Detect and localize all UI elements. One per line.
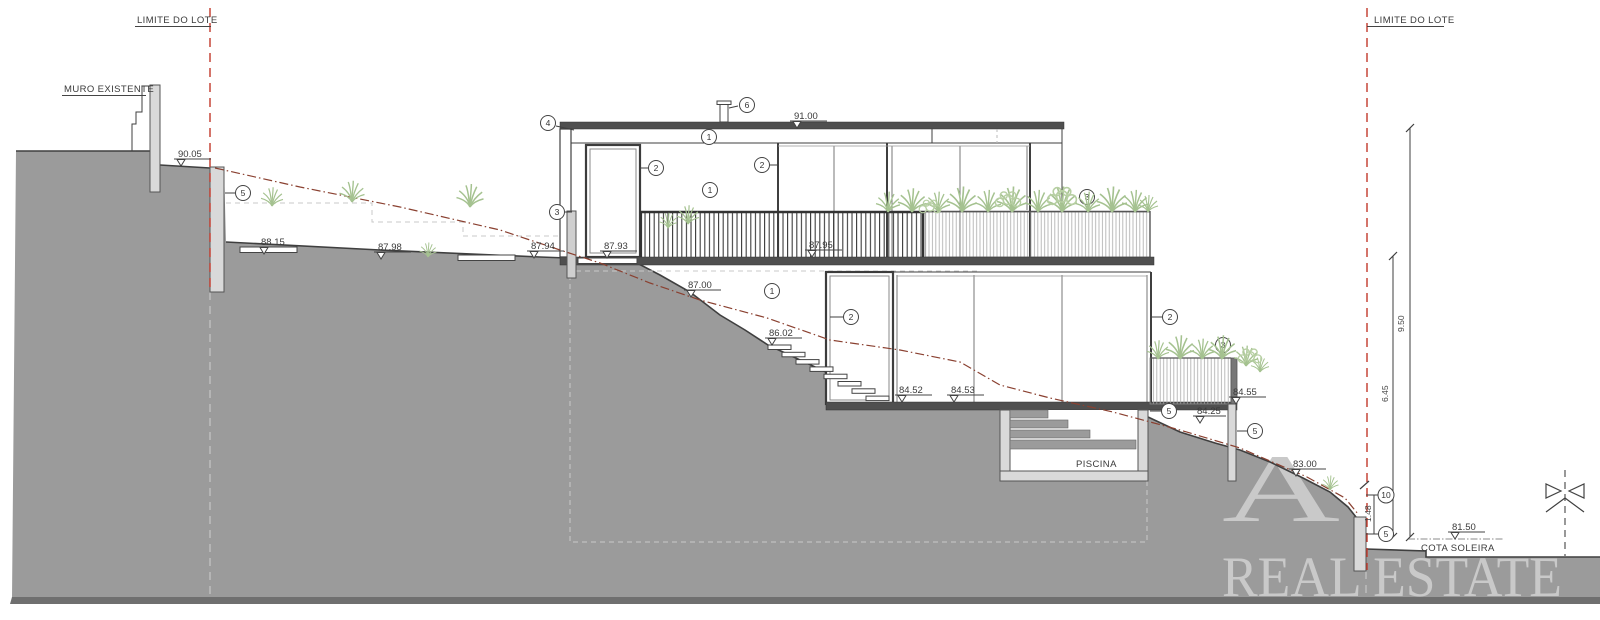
callout-1-wall-upper: 1 bbox=[703, 183, 718, 198]
existing-wall-label: MURO EXISTENTE bbox=[64, 84, 154, 95]
callout-4: 4 bbox=[541, 116, 556, 131]
svg-text:87.98: 87.98 bbox=[378, 242, 402, 253]
svg-text:6: 6 bbox=[745, 100, 750, 110]
svg-text:1: 1 bbox=[770, 286, 775, 296]
limit-right-label: LIMITE DO LOTE bbox=[1374, 15, 1455, 26]
architectural-section: A REAL ESTATE bbox=[0, 0, 1600, 620]
callout-5-wall-lower: 5 bbox=[1379, 527, 1394, 542]
dimension-9-50: 9.50 bbox=[1396, 315, 1406, 332]
svg-text:84.53: 84.53 bbox=[951, 385, 975, 396]
section-drawing-canvas: A REAL ESTATE bbox=[0, 0, 1600, 620]
roof-slab bbox=[560, 122, 1064, 129]
svg-text:87.93: 87.93 bbox=[604, 241, 628, 252]
svg-text:81.50: 81.50 bbox=[1452, 522, 1476, 533]
elevation-86-02: 86.02 bbox=[765, 328, 802, 345]
svg-text:2: 2 bbox=[654, 163, 659, 173]
svg-text:5: 5 bbox=[1384, 529, 1389, 539]
callout-5-limit-wall: 5 bbox=[236, 186, 251, 201]
svg-text:87.00: 87.00 bbox=[688, 280, 712, 291]
callout-2-window-upper: 2 bbox=[755, 158, 770, 173]
elevation-90-05: 90.05 bbox=[174, 149, 211, 166]
svg-text:84.52: 84.52 bbox=[899, 385, 923, 396]
pool: PISCINA bbox=[1000, 410, 1148, 481]
callout-10: 10 bbox=[1378, 487, 1394, 503]
svg-text:87.94: 87.94 bbox=[531, 241, 555, 252]
svg-text:2: 2 bbox=[1168, 312, 1173, 322]
callout-5-slab: 5 bbox=[1162, 404, 1177, 419]
svg-text:91.00: 91.00 bbox=[794, 111, 818, 122]
dimension-6-45: 6.45 bbox=[1380, 385, 1390, 402]
svg-text:84.55: 84.55 bbox=[1233, 387, 1257, 398]
svg-text:1: 1 bbox=[707, 132, 712, 142]
svg-text:84.25: 84.25 bbox=[1197, 406, 1221, 417]
callout-2-door-lower: 2 bbox=[844, 310, 859, 325]
watermark: A REAL ESTATE bbox=[1222, 435, 1562, 609]
elevation-87-00: 87.00 bbox=[684, 280, 721, 297]
lower-planter bbox=[1150, 358, 1237, 404]
callout-6: 6 bbox=[740, 98, 755, 113]
elevation-84-52: 84.52 bbox=[895, 385, 932, 402]
chimney bbox=[717, 101, 731, 122]
elevation-84-55: 84.55 bbox=[1229, 387, 1266, 404]
survey-marker-icon bbox=[1546, 470, 1584, 556]
limit-left-label: LIMITE DO LOTE bbox=[137, 15, 218, 26]
retaining-wall-right bbox=[1354, 517, 1366, 571]
svg-text:5: 5 bbox=[241, 188, 246, 198]
callout-5-wall-mid: 5 bbox=[1248, 424, 1263, 439]
terrace-slab bbox=[560, 257, 1154, 265]
callout-3-wall: 3 bbox=[550, 205, 565, 220]
svg-text:90.05: 90.05 bbox=[178, 149, 202, 160]
callout-1-roof: 1 bbox=[702, 130, 717, 145]
watermark-line2: REAL ESTATE bbox=[1222, 546, 1562, 609]
svg-text:5: 5 bbox=[1253, 426, 1258, 436]
svg-text:87.95: 87.95 bbox=[809, 240, 833, 251]
pool-label: PISCINA bbox=[1076, 459, 1117, 470]
callout-2-door-upper: 2 bbox=[649, 161, 664, 176]
callout-1-lower: 1 bbox=[765, 284, 780, 299]
callout-2-window-lower: 2 bbox=[1163, 310, 1178, 325]
svg-text:2: 2 bbox=[849, 312, 854, 322]
retaining-wall-mid bbox=[1228, 404, 1236, 481]
svg-text:88.15: 88.15 bbox=[261, 237, 285, 248]
lower-windows bbox=[893, 272, 1151, 402]
svg-text:3: 3 bbox=[555, 207, 560, 217]
svg-text:5: 5 bbox=[1167, 406, 1172, 416]
dimension-1-48: 1.48 bbox=[1363, 505, 1373, 522]
svg-text:10: 10 bbox=[1381, 490, 1391, 500]
svg-text:86.02: 86.02 bbox=[769, 328, 793, 339]
lot-limit-wall-left bbox=[210, 167, 224, 292]
dimension-lines: 9.50 6.45 1.48 bbox=[1360, 124, 1414, 541]
upper-floor bbox=[560, 101, 1154, 278]
svg-text:4: 4 bbox=[546, 118, 551, 128]
elevation-81-50: 81.50 bbox=[1448, 522, 1485, 539]
svg-text:2: 2 bbox=[760, 160, 765, 170]
svg-text:1: 1 bbox=[708, 185, 713, 195]
terrace-wall-post bbox=[567, 211, 576, 278]
cota-soleira-label: COTA SOLEIRA bbox=[1421, 543, 1495, 554]
elevation-84-53: 84.53 bbox=[947, 385, 984, 402]
upper-planter bbox=[925, 211, 1150, 257]
svg-text:83.00: 83.00 bbox=[1293, 459, 1317, 470]
